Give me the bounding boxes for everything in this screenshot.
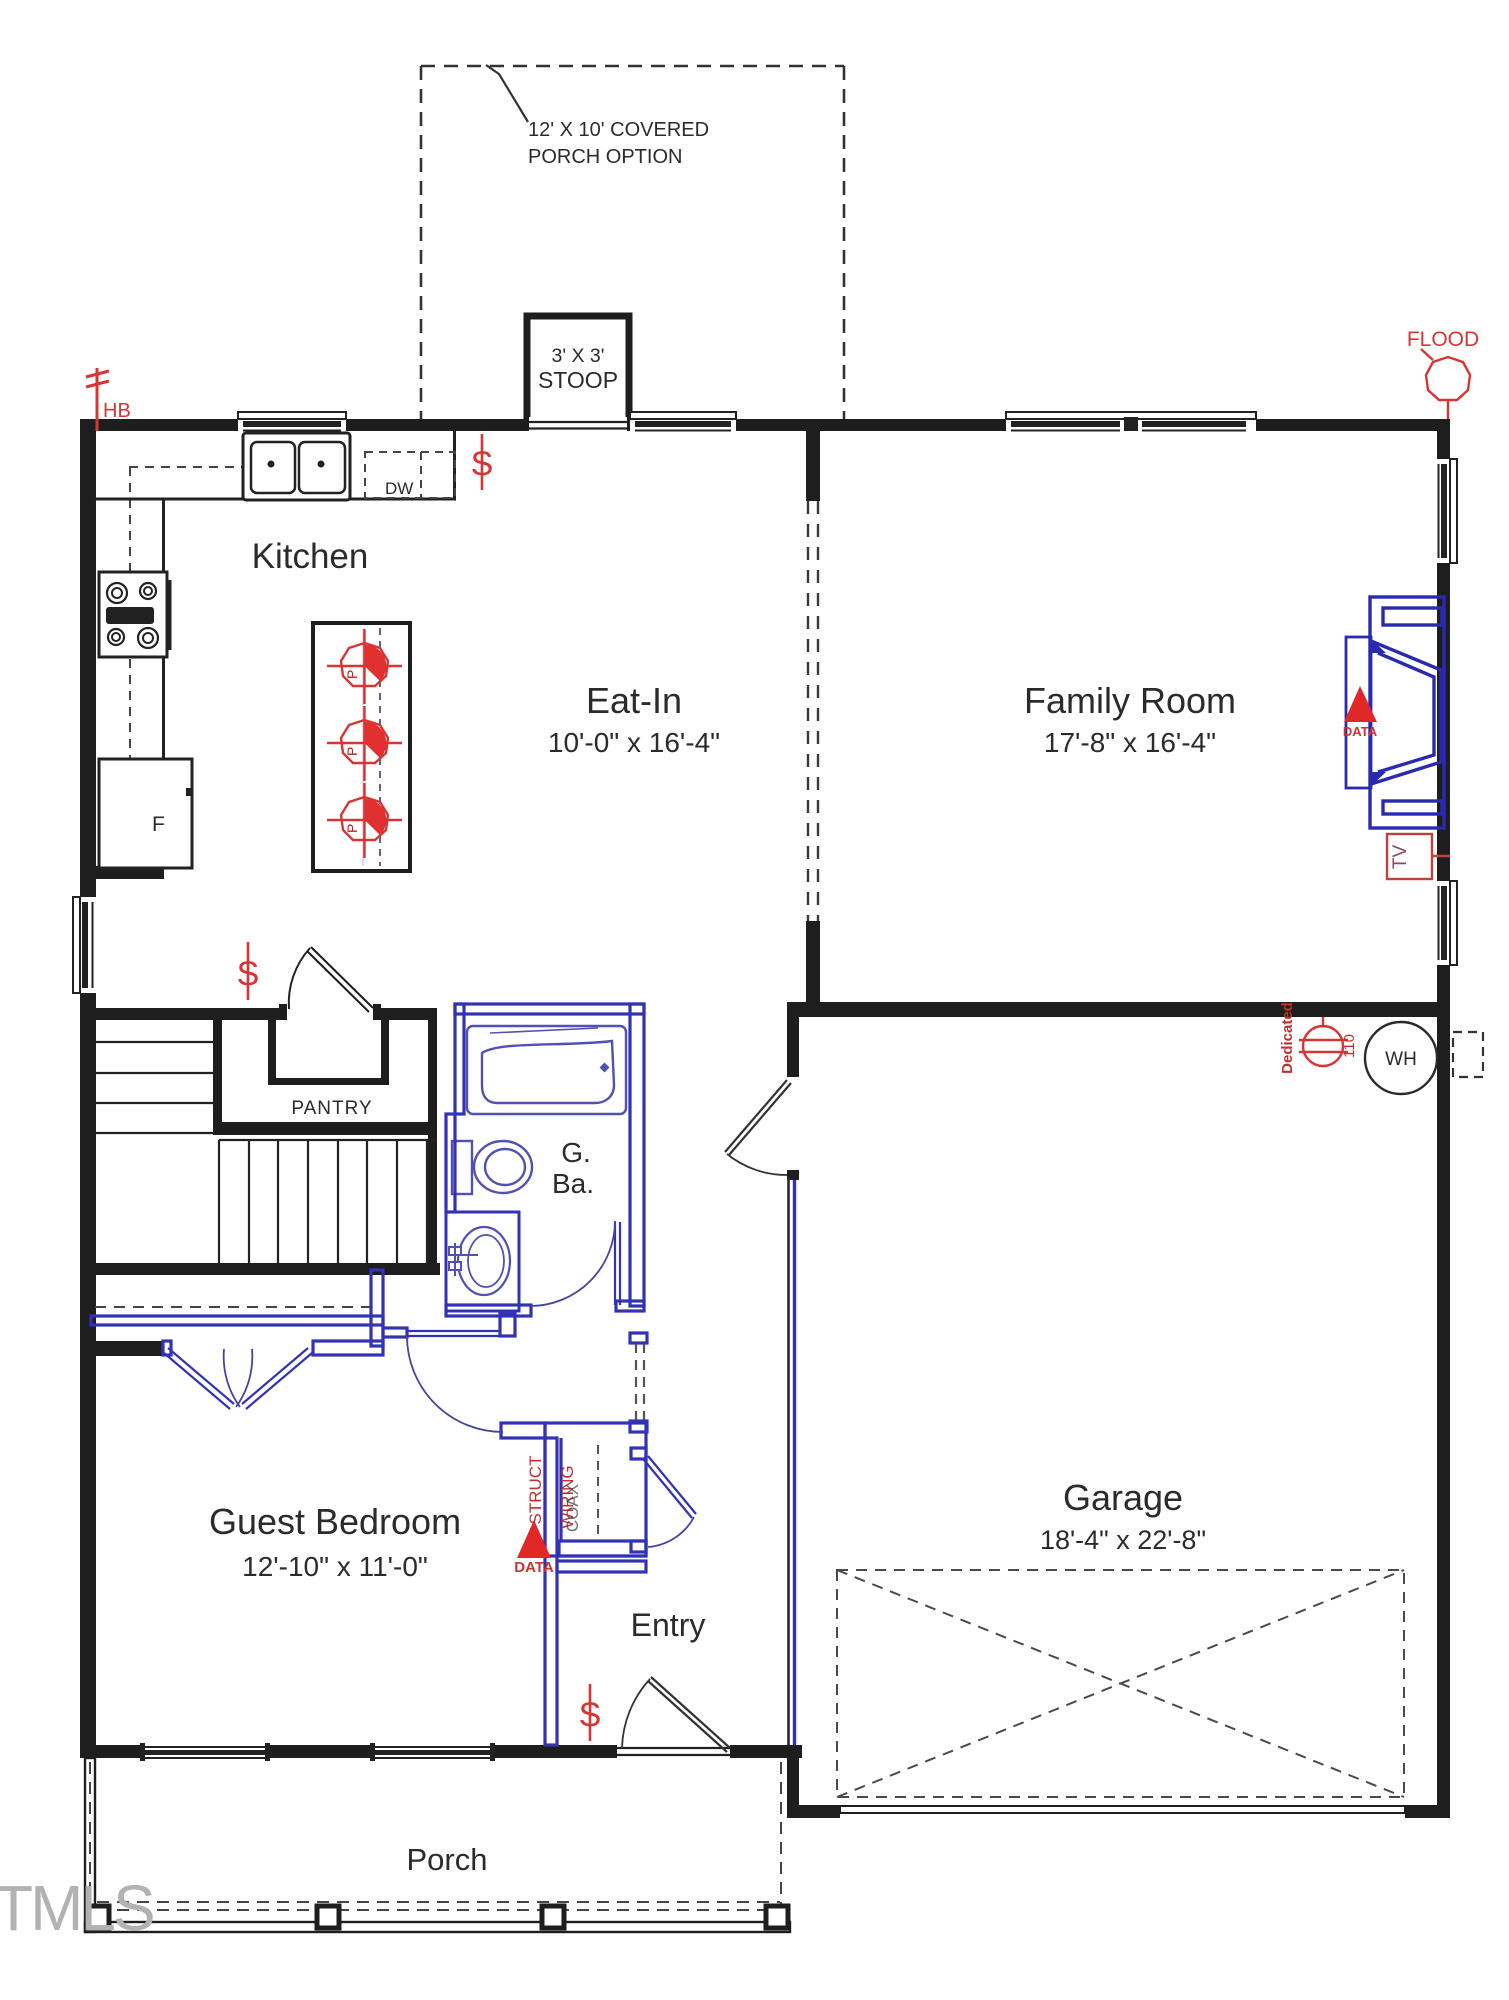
svg-text:17'-8" x 16'-4": 17'-8" x 16'-4" bbox=[1044, 727, 1216, 758]
svg-text:WH: WH bbox=[1385, 1049, 1417, 1070]
svg-text:10'-0" x 16'-4": 10'-0" x 16'-4" bbox=[548, 727, 720, 758]
svg-text:G.: G. bbox=[561, 1137, 591, 1168]
svg-text:F: F bbox=[152, 813, 165, 836]
svg-text:Ba.: Ba. bbox=[552, 1168, 594, 1199]
svg-text:Guest Bedroom: Guest Bedroom bbox=[209, 1501, 461, 1542]
svg-text:Garage: Garage bbox=[1063, 1477, 1183, 1518]
svg-text:TMLS: TMLS bbox=[0, 1872, 153, 1944]
svg-text:110: 110 bbox=[1341, 1034, 1358, 1058]
svg-text:P: P bbox=[344, 824, 360, 833]
svg-text:Eat-In: Eat-In bbox=[586, 680, 682, 721]
svg-text:PANTRY: PANTRY bbox=[291, 1098, 372, 1119]
svg-text:DATA: DATA bbox=[514, 1559, 554, 1576]
svg-text:12' X 10' COVERED: 12' X 10' COVERED bbox=[528, 119, 709, 141]
svg-text:Family Room: Family Room bbox=[1024, 680, 1236, 721]
svg-text:3' X 3': 3' X 3' bbox=[552, 345, 605, 367]
svg-text:18'-4" x 22'-8": 18'-4" x 22'-8" bbox=[1040, 1525, 1206, 1555]
svg-text:P: P bbox=[344, 747, 360, 756]
svg-text:S: S bbox=[579, 1696, 602, 1734]
svg-text:Porch: Porch bbox=[407, 1842, 488, 1877]
svg-text:Kitchen: Kitchen bbox=[252, 537, 369, 576]
svg-text:PORCH OPTION: PORCH OPTION bbox=[528, 146, 682, 168]
svg-text:HB: HB bbox=[103, 400, 131, 422]
svg-text:STRUCT: STRUCT bbox=[526, 1456, 545, 1525]
svg-text:12'-10" x 11'-0": 12'-10" x 11'-0" bbox=[242, 1551, 428, 1582]
svg-text:TV: TV bbox=[1390, 845, 1411, 870]
svg-text:Dedicated: Dedicated bbox=[1279, 1002, 1296, 1074]
svg-text:S: S bbox=[471, 445, 494, 483]
svg-text:COAX: COAX bbox=[563, 1484, 582, 1532]
svg-text:FLOOD: FLOOD bbox=[1407, 328, 1479, 351]
svg-text:S: S bbox=[237, 955, 260, 993]
svg-text:DATA: DATA bbox=[1343, 724, 1378, 739]
svg-text:P: P bbox=[344, 670, 360, 679]
svg-text:STOOP: STOOP bbox=[538, 367, 618, 393]
svg-text:Entry: Entry bbox=[631, 1607, 706, 1643]
svg-text:DW: DW bbox=[385, 479, 413, 498]
